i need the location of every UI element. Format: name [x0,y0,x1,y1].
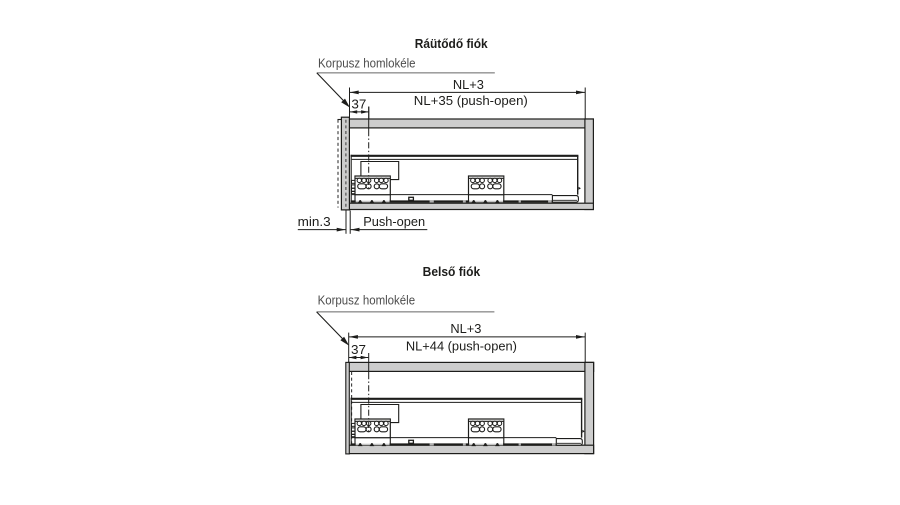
svg-text:Push-open: Push-open [363,214,425,229]
svg-text:NL+44 (push-open): NL+44 (push-open) [406,339,517,354]
svg-text:Ráütődő fiók: Ráütődő fiók [415,37,489,51]
svg-text:Belső fiók: Belső fiók [423,265,481,279]
svg-text:NL+3: NL+3 [453,77,484,92]
svg-text:NL+35 (push-open): NL+35 (push-open) [414,93,528,108]
svg-text:Korpusz homlokéle: Korpusz homlokéle [318,56,416,71]
svg-text:37: 37 [351,342,366,357]
svg-text:min.3: min.3 [298,214,331,229]
svg-text:NL+3: NL+3 [450,321,481,336]
svg-text:Korpusz homlokéle: Korpusz homlokéle [318,292,416,307]
svg-text:37: 37 [351,97,366,112]
